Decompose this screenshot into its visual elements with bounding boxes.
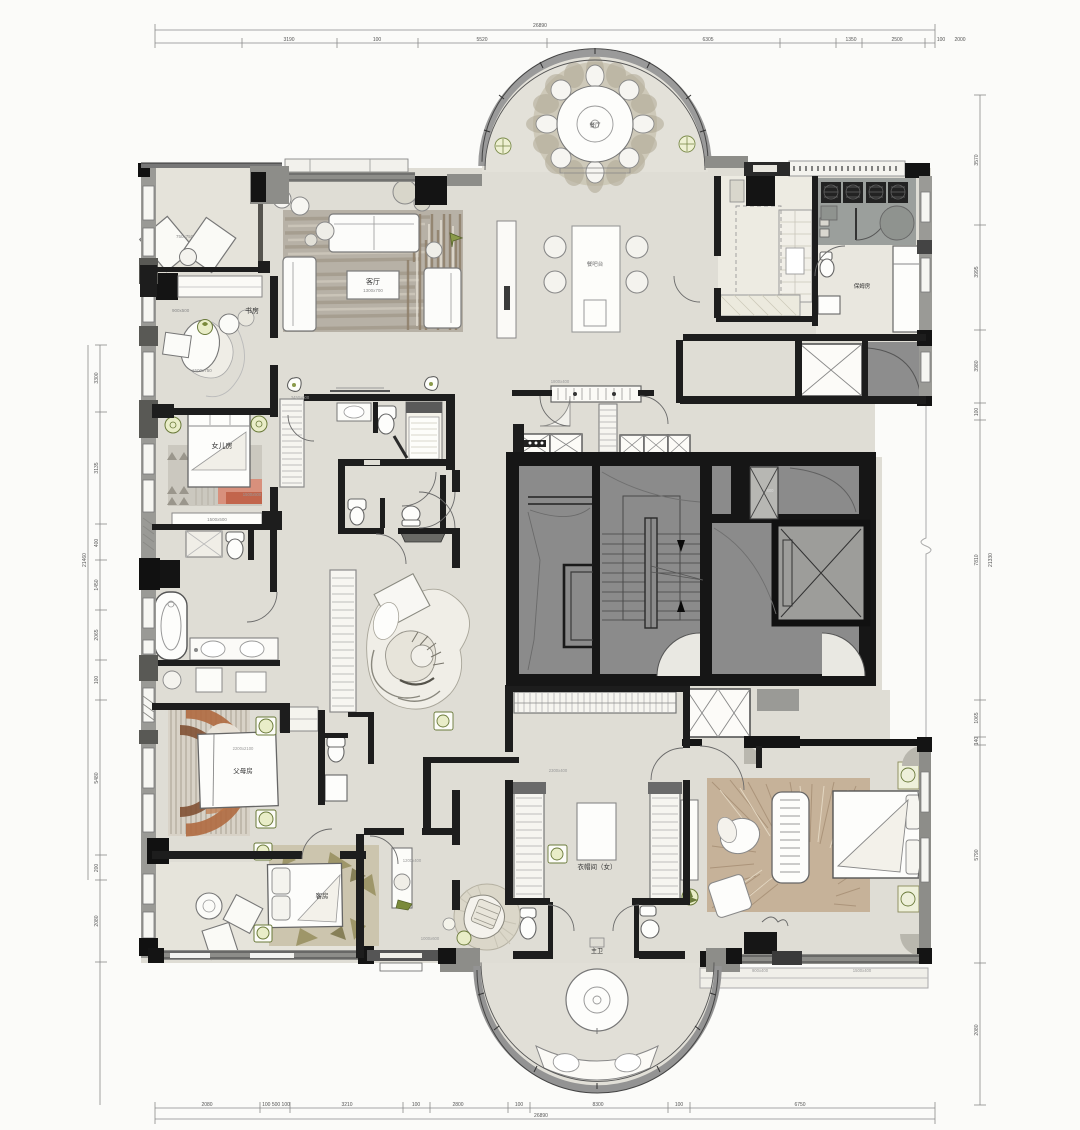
- svg-text:主卫: 主卫: [591, 947, 603, 955]
- svg-text:26890: 26890: [533, 23, 547, 29]
- svg-text:100: 100: [412, 1102, 421, 1108]
- svg-text:1200x400: 1200x400: [403, 858, 422, 863]
- svg-text:900x500: 900x500: [172, 308, 190, 313]
- svg-text:100: 100: [974, 408, 980, 417]
- svg-text:3570: 3570: [974, 154, 980, 165]
- svg-text:100: 100: [937, 37, 946, 43]
- svg-text:900x400: 900x400: [752, 968, 769, 973]
- svg-text:3135: 3135: [94, 462, 100, 473]
- svg-text:客厅: 客厅: [366, 277, 380, 286]
- svg-text:1500x400: 1500x400: [853, 968, 872, 973]
- svg-text:800: 800: [767, 488, 775, 493]
- svg-text:3995: 3995: [974, 266, 980, 277]
- svg-text:1500x500: 1500x500: [207, 517, 227, 522]
- svg-text:2500: 2500: [891, 37, 902, 43]
- svg-text:3210: 3210: [341, 1102, 352, 1108]
- svg-text:8300: 8300: [592, 1102, 603, 1108]
- svg-text:父母房: 父母房: [233, 766, 253, 775]
- svg-text:衣帽间（女）: 衣帽间（女）: [578, 862, 617, 871]
- svg-text:1500x500: 1500x500: [243, 492, 262, 497]
- svg-text:21460: 21460: [82, 553, 88, 567]
- svg-text:书房: 书房: [245, 306, 259, 315]
- svg-text:6305: 6305: [702, 37, 713, 43]
- svg-text:21330: 21330: [988, 553, 994, 567]
- svg-text:2080: 2080: [974, 1024, 980, 1035]
- svg-text:2080: 2080: [94, 915, 100, 926]
- svg-text:2080: 2080: [201, 1102, 212, 1108]
- svg-text:5520: 5520: [476, 37, 487, 43]
- svg-text:7810: 7810: [974, 554, 980, 565]
- svg-text:餐吧台: 餐吧台: [587, 260, 604, 268]
- svg-text:3980: 3980: [974, 360, 980, 371]
- svg-text:保姆房: 保姆房: [854, 282, 871, 290]
- svg-text:1500x750: 1500x750: [192, 368, 212, 373]
- svg-text:1350: 1350: [845, 37, 856, 43]
- svg-text:1300x700: 1300x700: [363, 288, 383, 293]
- svg-text:餐厅: 餐厅: [589, 121, 601, 129]
- svg-text:100 500 100: 100 500 100: [262, 1102, 290, 1108]
- svg-text:3300: 3300: [94, 372, 100, 383]
- svg-text:100: 100: [515, 1102, 524, 1108]
- svg-text:100: 100: [675, 1102, 684, 1108]
- svg-text:5790: 5790: [974, 849, 980, 860]
- svg-text:5480: 5480: [94, 772, 100, 783]
- svg-text:2200x2100: 2200x2100: [233, 746, 254, 751]
- svg-text:6750: 6750: [794, 1102, 805, 1108]
- svg-text:2000: 2000: [954, 37, 965, 43]
- svg-text:2300x400: 2300x400: [549, 768, 568, 773]
- svg-text:女儿房: 女儿房: [212, 441, 233, 450]
- svg-text:26890: 26890: [534, 1113, 548, 1119]
- svg-text:客房: 客房: [316, 891, 329, 900]
- svg-text:140: 140: [974, 737, 980, 746]
- svg-text:200: 200: [94, 864, 100, 873]
- svg-text:1000x600: 1000x600: [421, 936, 440, 941]
- svg-text:750x750: 750x750: [176, 234, 194, 239]
- svg-text:1800x400: 1800x400: [551, 379, 570, 384]
- svg-text:1450: 1450: [94, 579, 100, 590]
- svg-text:3190: 3190: [283, 37, 294, 43]
- svg-text:400: 400: [94, 539, 100, 548]
- svg-text:100: 100: [94, 676, 100, 685]
- svg-text:3450x600: 3450x600: [291, 395, 310, 400]
- svg-text:2065: 2065: [94, 629, 100, 640]
- svg-text:100: 100: [373, 37, 382, 43]
- svg-text:1065: 1065: [974, 712, 980, 723]
- svg-text:2800: 2800: [452, 1102, 463, 1108]
